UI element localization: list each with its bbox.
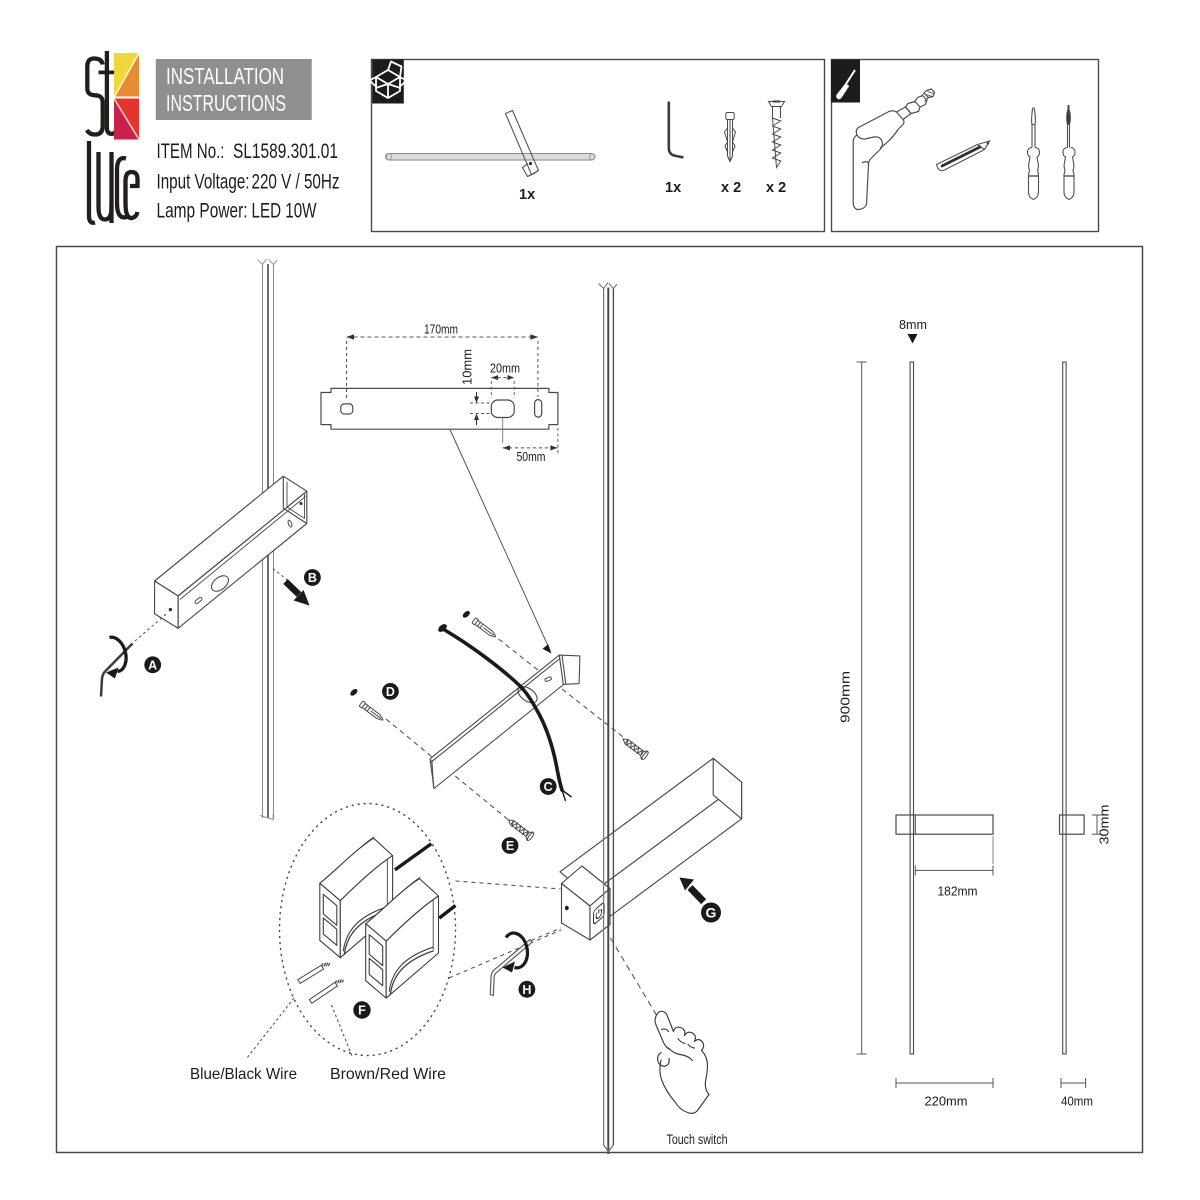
svg-text:D: D xyxy=(386,685,395,699)
svg-text:220 V / 50Hz: 220 V / 50Hz xyxy=(252,170,340,194)
svg-text:40mm: 40mm xyxy=(1061,1094,1093,1109)
svg-text:10mm: 10mm xyxy=(460,349,475,385)
svg-text:F: F xyxy=(358,1004,366,1018)
svg-text:50mm: 50mm xyxy=(517,449,546,464)
svg-text:220mm: 220mm xyxy=(925,1094,968,1109)
svg-text:SL1589.301.01: SL1589.301.01 xyxy=(233,139,338,163)
svg-text:Blue/Black Wire: Blue/Black Wire xyxy=(190,1066,297,1083)
svg-text:170mm: 170mm xyxy=(424,322,458,337)
svg-text:182mm: 182mm xyxy=(938,884,978,899)
svg-text:900mm: 900mm xyxy=(838,671,853,723)
svg-text:INSTRUCTIONS: INSTRUCTIONS xyxy=(166,90,286,116)
svg-text:Touch switch: Touch switch xyxy=(667,1132,728,1147)
svg-text:x 2: x 2 xyxy=(766,180,786,196)
svg-text:30mm: 30mm xyxy=(1097,805,1112,845)
svg-text:LED 10W: LED 10W xyxy=(252,199,317,223)
svg-text:G: G xyxy=(706,905,717,921)
svg-text:x 2: x 2 xyxy=(721,180,741,196)
svg-text:ITEM No.:: ITEM No.: xyxy=(157,139,225,163)
svg-text:B: B xyxy=(308,571,317,585)
svg-text:Input Voltage:: Input Voltage: xyxy=(157,170,250,194)
svg-text:1x: 1x xyxy=(519,187,535,203)
svg-text:Lamp Power:: Lamp Power: xyxy=(157,199,248,223)
svg-text:1x: 1x xyxy=(665,180,681,196)
svg-text:E: E xyxy=(506,839,514,853)
svg-text:H: H xyxy=(522,983,531,997)
svg-text:8mm: 8mm xyxy=(899,317,927,332)
svg-text:A: A xyxy=(148,658,157,672)
svg-text:C: C xyxy=(544,780,553,794)
svg-text:20mm: 20mm xyxy=(490,361,520,376)
svg-text:INSTALLATION: INSTALLATION xyxy=(166,63,284,89)
svg-text:Brown/Red Wire: Brown/Red Wire xyxy=(330,1066,446,1083)
